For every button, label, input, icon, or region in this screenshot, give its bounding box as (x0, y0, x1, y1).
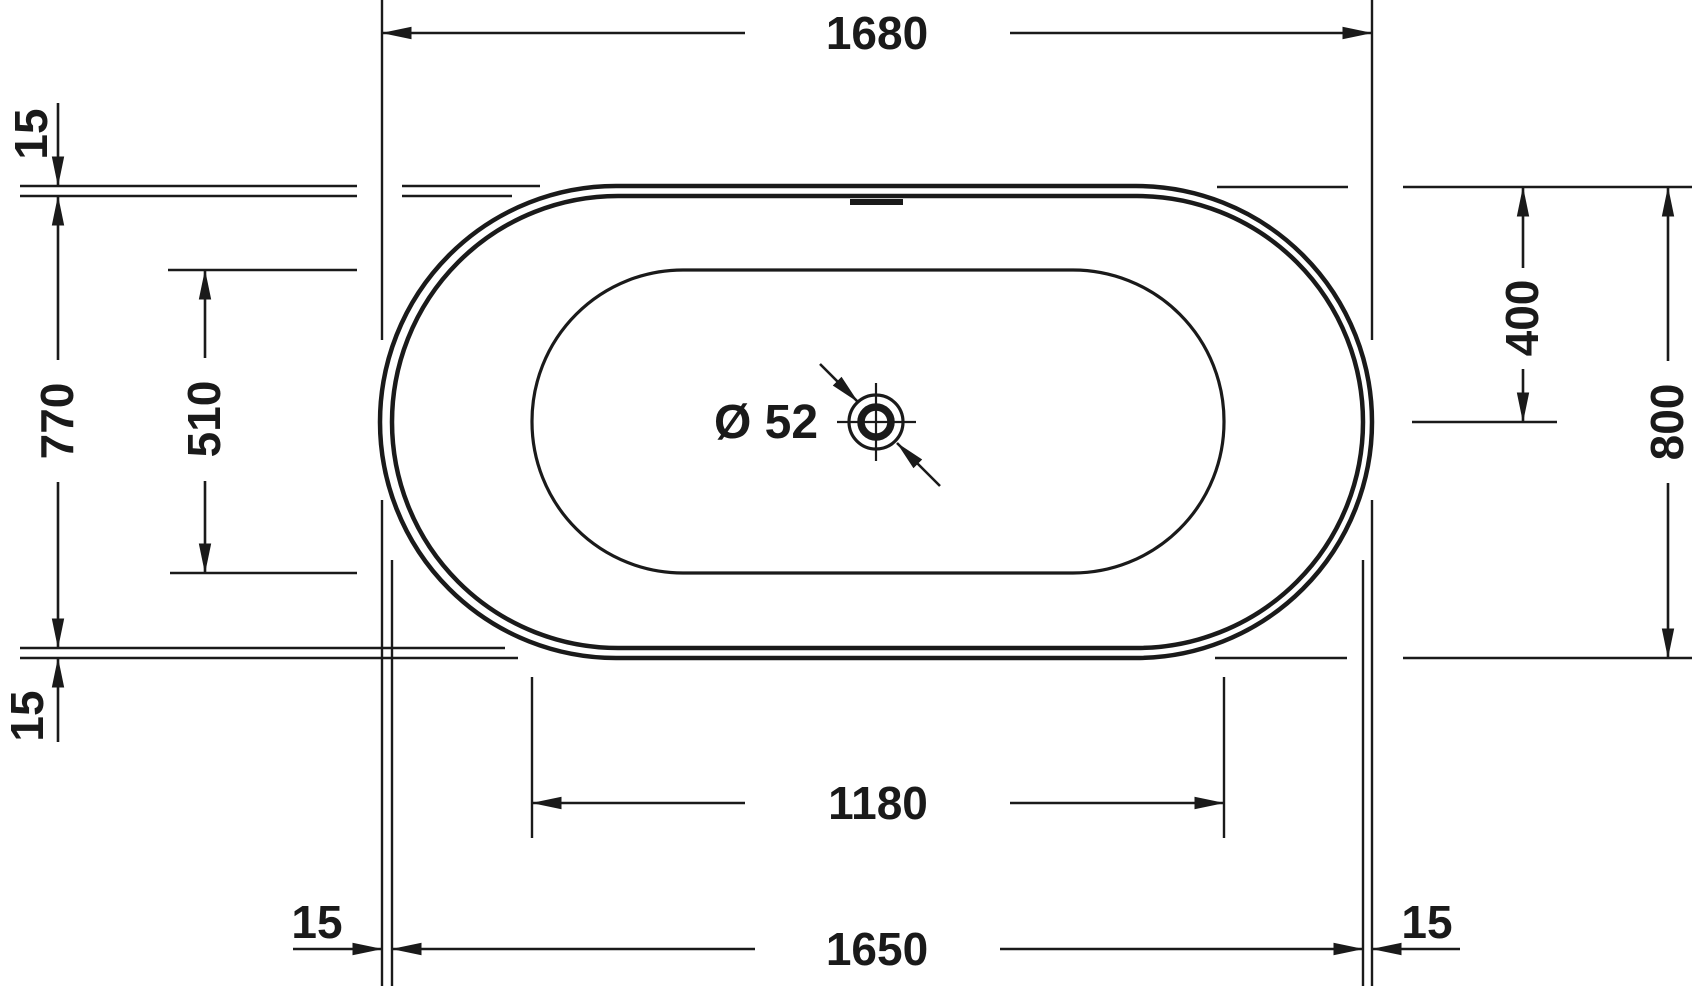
dim-overall-width-label: 800 (1641, 384, 1693, 461)
dim-basin-length-label: 1180 (828, 777, 928, 829)
dim-rim-offset-bl-label: 15 (291, 896, 342, 948)
drain-symbol (820, 364, 940, 486)
drain-leader-top (820, 364, 858, 402)
drain-leader-bottom (897, 443, 940, 486)
dim-basin-width-label: 510 (178, 381, 230, 458)
drain-diameter-label: Ø 52 (714, 396, 818, 449)
bathtub-technical-drawing: Ø 52 1680 1180 1650 15 15 15 770 1 (0, 0, 1705, 986)
dim-overall-length-label: 1680 (826, 7, 928, 59)
dim-rim-offset-tl-label: 15 (5, 108, 57, 159)
dim-rim-offset-bl-v-label: 15 (1, 690, 53, 741)
dim-body-width-label: 770 (31, 383, 83, 460)
dim-body-length-label: 1650 (826, 923, 928, 975)
drawing-canvas: Ø 52 1680 1180 1650 15 15 15 770 1 (0, 0, 1705, 986)
dim-rim-offset-br-label: 15 (1401, 896, 1452, 948)
dim-center-offset-label: 400 (1496, 280, 1548, 357)
